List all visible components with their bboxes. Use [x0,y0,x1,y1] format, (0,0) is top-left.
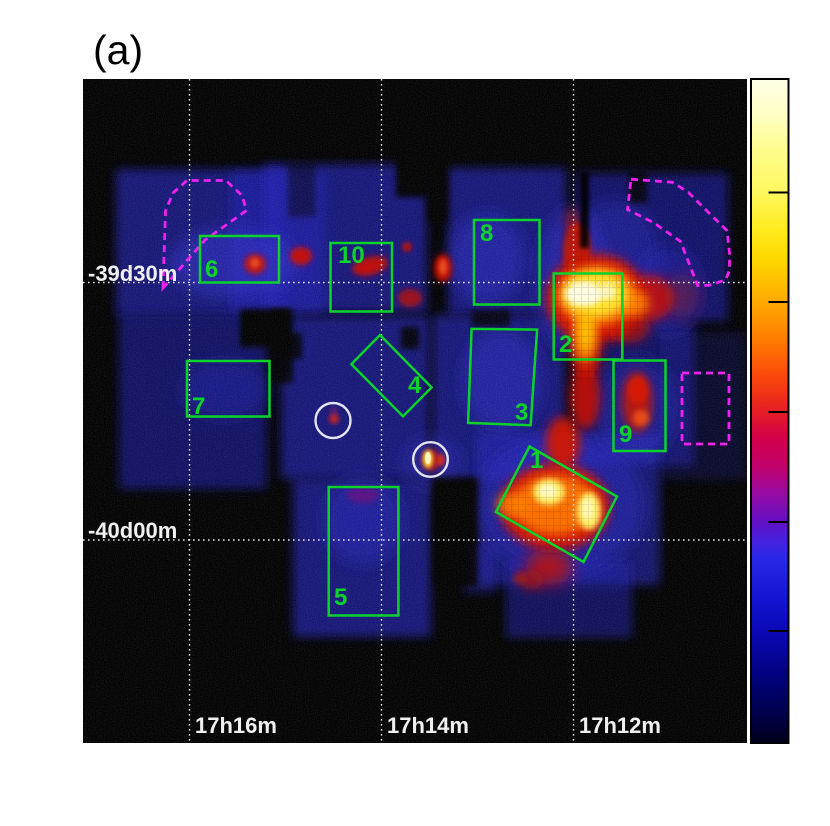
svg-text:1: 1 [530,447,543,474]
svg-text:(a): (a) [93,27,143,73]
svg-text:2: 2 [559,331,572,358]
svg-text:-40d00m: -40d00m [88,518,177,543]
svg-text:3: 3 [515,399,528,426]
svg-text:17h14m: 17h14m [387,713,469,738]
svg-text:9: 9 [619,421,632,448]
svg-text:17h16m: 17h16m [195,713,277,738]
svg-text:7: 7 [192,393,205,420]
svg-text:5: 5 [334,584,347,611]
svg-text:4: 4 [408,372,422,399]
svg-text:-39d30m: -39d30m [88,261,177,286]
svg-text:8: 8 [480,220,493,247]
svg-text:6: 6 [205,256,218,283]
svg-text:10: 10 [338,242,365,269]
svg-text:17h12m: 17h12m [579,713,661,738]
